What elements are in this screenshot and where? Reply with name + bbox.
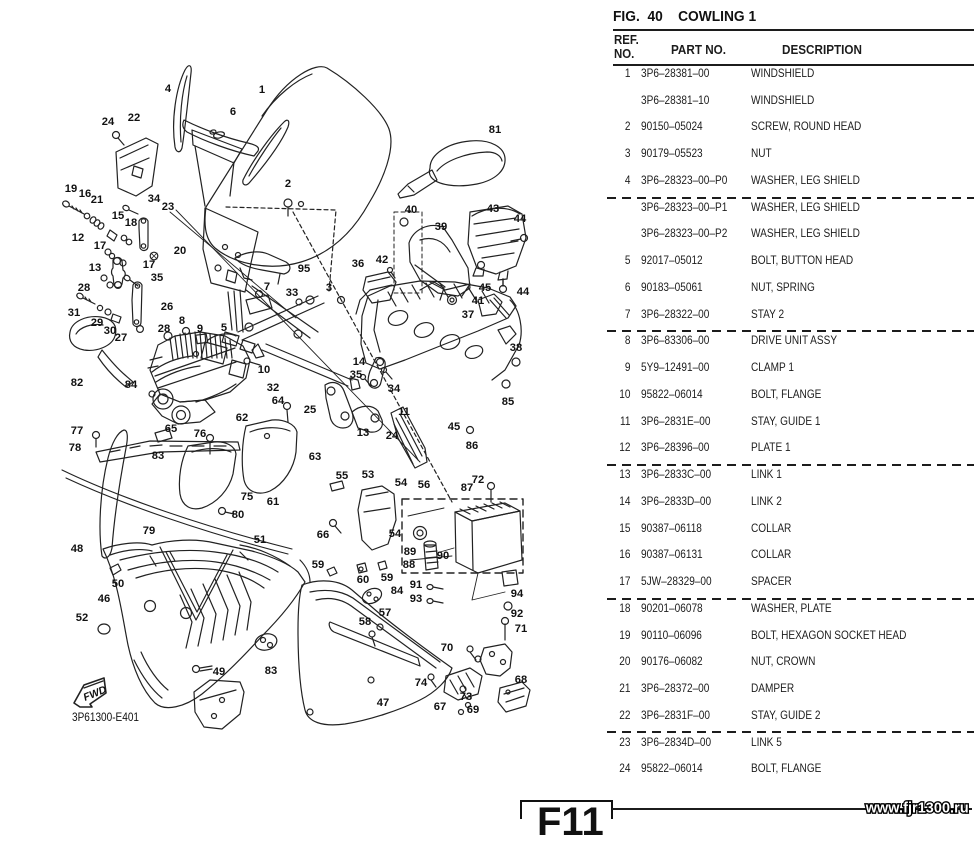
svg-text:70: 70 — [441, 642, 453, 654]
svg-text:43: 43 — [487, 203, 499, 215]
svg-text:18: 18 — [125, 217, 137, 229]
svg-text:17: 17 — [143, 259, 155, 271]
svg-text:59: 59 — [312, 559, 324, 571]
svg-text:32: 32 — [267, 382, 279, 394]
svg-text:6: 6 — [230, 106, 236, 118]
svg-text:11: 11 — [398, 406, 410, 418]
svg-text:12: 12 — [72, 232, 84, 244]
svg-text:37: 37 — [462, 309, 474, 321]
svg-text:29: 29 — [91, 317, 103, 329]
svg-text:16: 16 — [79, 188, 91, 200]
svg-text:45: 45 — [479, 282, 491, 294]
svg-text:67: 67 — [434, 701, 446, 713]
svg-text:84: 84 — [391, 585, 404, 597]
svg-text:45: 45 — [448, 421, 460, 433]
svg-text:41: 41 — [472, 295, 484, 307]
svg-text:31: 31 — [68, 307, 80, 319]
svg-text:7: 7 — [264, 281, 270, 293]
svg-text:47: 47 — [377, 697, 389, 709]
svg-text:24: 24 — [386, 430, 399, 442]
svg-text:62: 62 — [236, 412, 248, 424]
svg-text:40: 40 — [405, 204, 417, 216]
svg-text:34: 34 — [148, 193, 161, 205]
svg-text:61: 61 — [267, 496, 279, 508]
svg-text:65: 65 — [165, 423, 177, 435]
svg-text:93: 93 — [410, 593, 422, 605]
svg-text:75: 75 — [241, 491, 253, 503]
svg-text:1: 1 — [259, 84, 265, 96]
svg-text:9: 9 — [197, 323, 203, 335]
svg-text:3: 3 — [326, 282, 332, 294]
svg-text:28: 28 — [78, 282, 90, 294]
svg-text:35: 35 — [350, 369, 362, 381]
svg-text:2: 2 — [285, 178, 291, 190]
svg-text:10: 10 — [258, 364, 270, 376]
svg-text:4: 4 — [165, 83, 172, 95]
svg-text:78: 78 — [69, 442, 81, 454]
svg-text:24: 24 — [102, 116, 115, 128]
svg-text:27: 27 — [115, 332, 127, 344]
svg-text:68: 68 — [515, 674, 527, 686]
svg-text:74: 74 — [415, 677, 428, 689]
svg-text:22: 22 — [128, 112, 140, 124]
svg-text:83: 83 — [152, 450, 164, 462]
svg-text:26: 26 — [161, 301, 173, 313]
svg-text:95: 95 — [298, 263, 310, 275]
svg-text:38: 38 — [510, 342, 522, 354]
svg-text:34: 34 — [388, 383, 401, 395]
svg-text:48: 48 — [71, 543, 83, 555]
svg-text:92: 92 — [511, 608, 523, 620]
svg-text:91: 91 — [410, 579, 422, 591]
svg-text:83: 83 — [265, 665, 277, 677]
svg-text:73: 73 — [460, 691, 472, 703]
svg-text:50: 50 — [112, 578, 124, 590]
svg-text:94: 94 — [511, 588, 524, 600]
svg-text:13: 13 — [89, 262, 101, 274]
svg-text:8: 8 — [179, 315, 185, 327]
svg-text:35: 35 — [151, 272, 163, 284]
svg-text:20: 20 — [174, 245, 186, 257]
svg-text:82: 82 — [71, 377, 83, 389]
svg-text:28: 28 — [158, 323, 170, 335]
svg-text:58: 58 — [359, 616, 371, 628]
svg-text:66: 66 — [317, 529, 329, 541]
svg-text:36: 36 — [352, 258, 364, 270]
svg-text:54: 54 — [395, 477, 408, 489]
svg-text:25: 25 — [304, 404, 316, 416]
svg-text:33: 33 — [286, 287, 298, 299]
svg-text:90: 90 — [437, 550, 449, 562]
svg-text:52: 52 — [76, 612, 88, 624]
svg-text:54: 54 — [389, 528, 402, 540]
svg-text:www.fjr1300.ru: www.fjr1300.ru — [865, 801, 969, 817]
svg-text:14: 14 — [353, 356, 366, 368]
svg-text:56: 56 — [418, 479, 430, 491]
svg-text:19: 19 — [65, 183, 77, 195]
svg-text:69: 69 — [467, 704, 479, 716]
svg-text:84: 84 — [125, 379, 138, 391]
svg-text:86: 86 — [466, 440, 478, 452]
svg-text:15: 15 — [112, 210, 124, 222]
svg-text:57: 57 — [379, 607, 391, 619]
svg-text:79: 79 — [143, 525, 155, 537]
svg-text:85: 85 — [502, 396, 514, 408]
svg-text:76: 76 — [194, 428, 206, 440]
svg-text:81: 81 — [489, 124, 501, 136]
svg-text:59: 59 — [381, 572, 393, 584]
svg-text:46: 46 — [98, 593, 110, 605]
svg-text:3P61300-E401: 3P61300-E401 — [72, 712, 139, 724]
svg-text:53: 53 — [362, 469, 374, 481]
svg-text:77: 77 — [71, 425, 83, 437]
svg-text:44: 44 — [517, 286, 530, 298]
svg-text:5: 5 — [221, 322, 227, 334]
svg-text:51: 51 — [254, 534, 266, 546]
svg-text:63: 63 — [309, 451, 321, 463]
svg-text:55: 55 — [336, 470, 348, 482]
svg-text:71: 71 — [515, 623, 527, 635]
svg-text:60: 60 — [357, 574, 369, 586]
svg-text:17: 17 — [94, 240, 106, 252]
svg-text:13: 13 — [357, 427, 369, 439]
svg-text:44: 44 — [514, 213, 527, 225]
svg-text:88: 88 — [403, 559, 415, 571]
svg-text:89: 89 — [404, 546, 416, 558]
svg-text:64: 64 — [272, 395, 285, 407]
svg-text:42: 42 — [376, 254, 388, 266]
svg-text:72: 72 — [472, 474, 484, 486]
svg-text:80: 80 — [232, 509, 244, 521]
svg-text:23: 23 — [162, 201, 174, 213]
svg-text:49: 49 — [213, 666, 225, 678]
svg-text:21: 21 — [91, 194, 103, 206]
svg-text:39: 39 — [435, 221, 447, 233]
